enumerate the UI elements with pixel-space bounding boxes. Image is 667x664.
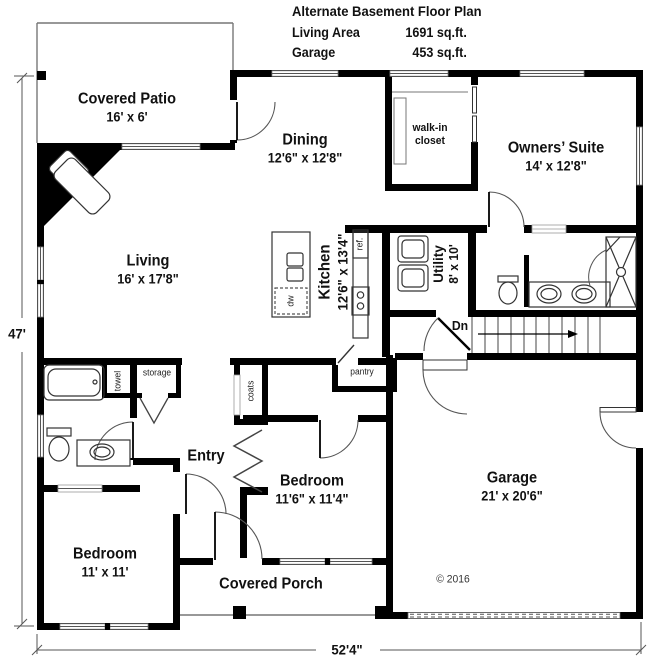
label-towel: towel — [113, 371, 124, 391]
label-kitchen: Kitchen 12'6" x 13'4" — [317, 234, 352, 311]
label-bedroom-front: Bedroom 11'6" x 11'4" — [275, 473, 348, 508]
living-area-value: 1691 sq.ft. — [405, 25, 466, 40]
dimension-width: 52'4" — [331, 642, 362, 659]
utility-fixtures — [398, 236, 428, 291]
bifold-doors — [234, 430, 262, 492]
shower-drain — [617, 268, 626, 277]
burner — [357, 303, 363, 309]
dimension-height: 47' — [8, 326, 26, 343]
stairs — [472, 317, 600, 353]
label-coats: coats — [246, 381, 257, 402]
living-area-row: Living Area 1691 sq.ft. — [292, 25, 467, 40]
garage-door — [408, 613, 620, 619]
burner — [357, 292, 363, 298]
owners-bath-fixtures — [498, 237, 636, 307]
label-dishwasher: dw — [286, 295, 297, 306]
toilet-tank — [498, 276, 518, 282]
garage-area-row: Garage 453 sq.ft. — [292, 45, 467, 60]
porch-post — [233, 606, 246, 619]
label-walk-in-closet: walk-in closet — [412, 122, 447, 148]
label-covered-porch: Covered Porch — [219, 576, 323, 595]
label-bedroom-corner: Bedroom 11' x 11' — [73, 546, 137, 581]
label-refrigerator: ref. — [355, 238, 366, 251]
toilet-bowl — [49, 437, 69, 461]
garage-area-label: Garage — [292, 45, 335, 60]
label-covered-patio: Covered Patio 16' x 6' — [78, 91, 176, 126]
living-area-label: Living Area — [292, 25, 360, 40]
plan-title: Alternate Basement Floor Plan — [292, 3, 467, 19]
toilet-tank — [47, 428, 71, 436]
patio-door-gap — [230, 100, 237, 140]
porch-post — [375, 606, 388, 619]
label-dining: Dining 12'6" x 12'8" — [268, 132, 343, 167]
floorplan-page: Alternate Basement Floor Plan Living Are… — [0, 0, 667, 664]
label-utility: Utility 8' x 10' — [430, 244, 462, 283]
label-owners-suite: Owners’ Suite 14' x 12'8" — [508, 140, 604, 175]
garage-area-value: 453 sq.ft. — [412, 45, 466, 60]
label-storage: storage — [143, 368, 171, 379]
toilet-bowl — [499, 282, 517, 304]
copyright-text: © 2016 — [436, 573, 470, 586]
label-living: Living 16' x 17'8" — [117, 253, 178, 288]
sink-basin — [287, 268, 303, 281]
label-garage: Garage 21' x 20'6" — [481, 470, 542, 505]
label-pantry: pantry — [350, 367, 374, 378]
label-stairs-down: Dn — [452, 318, 468, 334]
sink-basin — [287, 253, 303, 266]
plan-header: Alternate Basement Floor Plan Living Are… — [292, 3, 467, 65]
bathtub — [44, 365, 104, 400]
label-entry: Entry — [187, 448, 224, 467]
patio-post — [37, 71, 46, 80]
